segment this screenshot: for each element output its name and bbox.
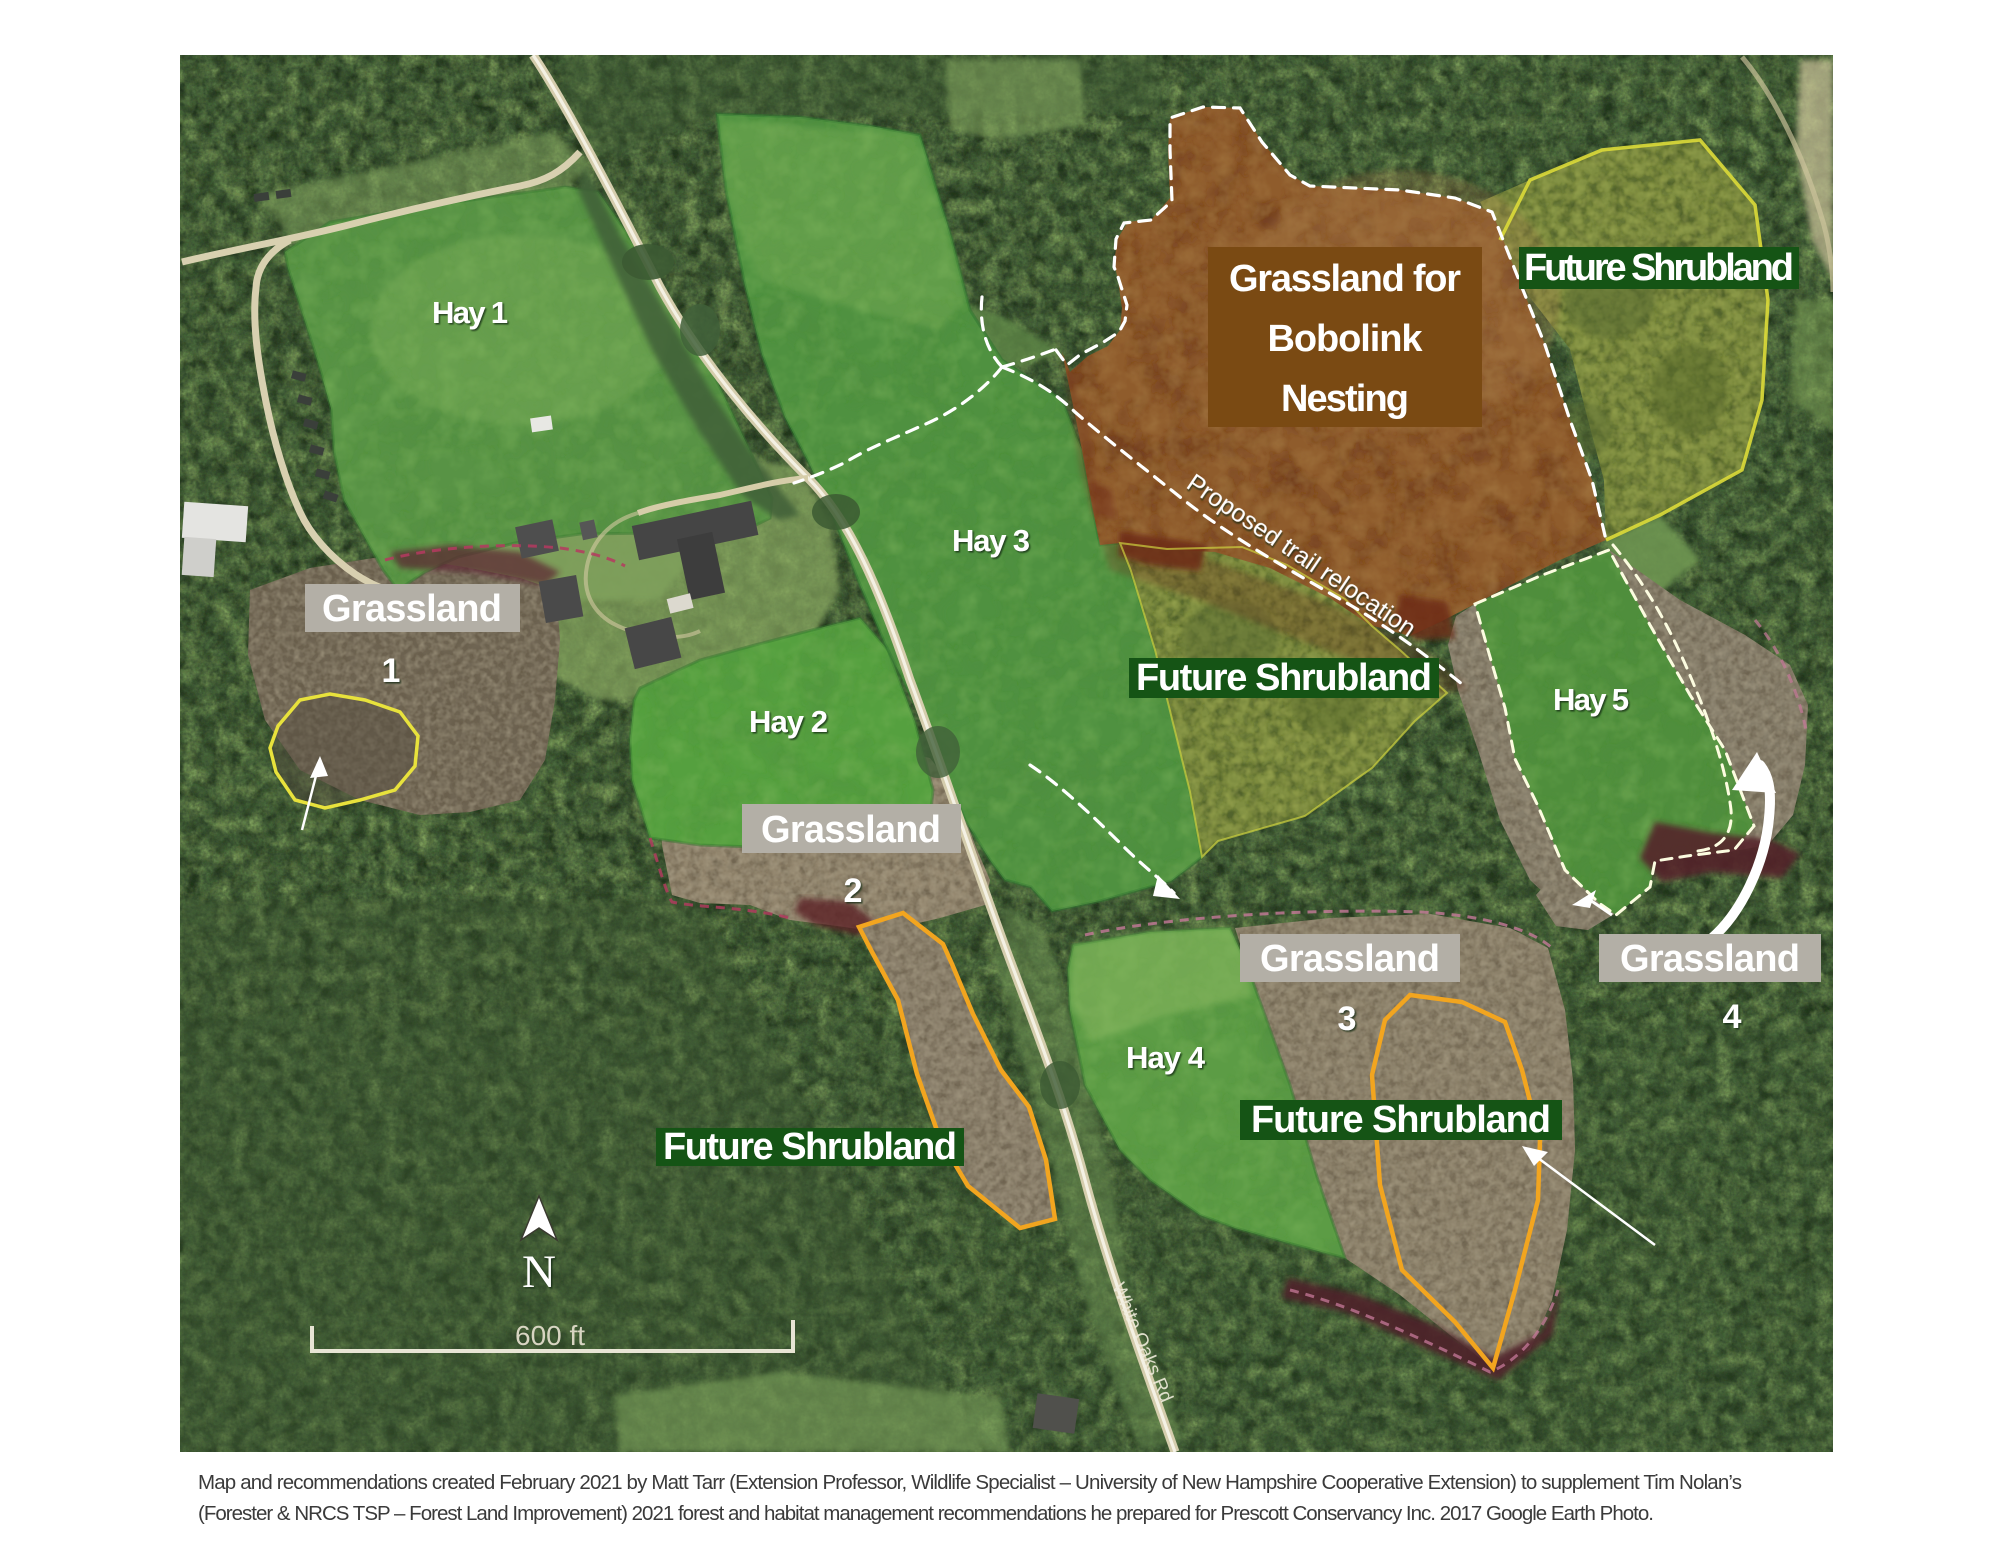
svg-text:Hay 3: Hay 3: [952, 523, 1030, 558]
svg-text:Future Shrubland: Future Shrubland: [1251, 1099, 1551, 1141]
svg-text:N: N: [522, 1246, 556, 1298]
svg-text:Future Shrubland: Future Shrubland: [663, 1126, 957, 1168]
svg-text:Future Shrubland: Future Shrubland: [1524, 247, 1794, 289]
svg-text:1: 1: [382, 652, 401, 690]
svg-text:Future Shrubland: Future Shrubland: [1136, 657, 1432, 699]
svg-text:Grassland: Grassland: [1260, 938, 1440, 980]
svg-text:Hay 5: Hay 5: [1553, 682, 1629, 717]
svg-text:Hay 1: Hay 1: [432, 295, 508, 330]
svg-text:Grassland: Grassland: [761, 809, 941, 851]
svg-text:(Forester & NRCS TSP – Forest: (Forester & NRCS TSP – Forest Land Impro…: [198, 1502, 1654, 1525]
svg-text:Hay 4: Hay 4: [1126, 1040, 1206, 1075]
svg-text:3: 3: [1338, 1000, 1357, 1038]
svg-text:Grassland: Grassland: [1620, 938, 1800, 980]
svg-text:4: 4: [1723, 998, 1742, 1036]
svg-text:Nesting: Nesting: [1281, 378, 1409, 420]
svg-text:Map and recommendations create: Map and recommendations created February…: [198, 1471, 1742, 1494]
svg-text:Hay 2: Hay 2: [749, 704, 828, 739]
svg-text:2: 2: [844, 872, 863, 910]
svg-text:Bobolink: Bobolink: [1268, 318, 1424, 360]
svg-text:Grassland for: Grassland for: [1229, 258, 1461, 300]
svg-text:Grassland: Grassland: [322, 588, 502, 630]
svg-text:600 ft: 600 ft: [515, 1320, 585, 1351]
